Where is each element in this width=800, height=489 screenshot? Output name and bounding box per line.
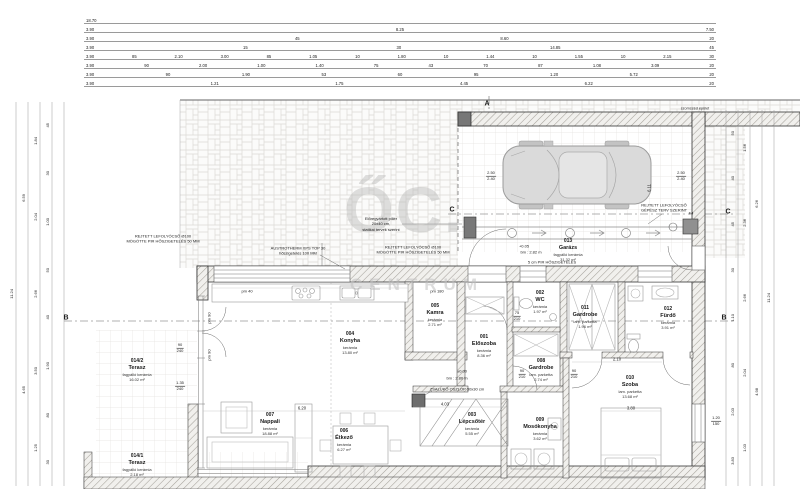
- garage-level-marker: +0.05: [519, 243, 529, 248]
- dimension-column: 6.264.98: [751, 110, 762, 486]
- dim-value: 4.65: [22, 386, 26, 394]
- dim-value: 2.04: [34, 213, 38, 221]
- inline-dim-bedroom: 2.10: [613, 357, 621, 362]
- section-marker-b-right: B: [721, 315, 726, 322]
- room-label-konyha: 004Konyha kerámia13.80 m²: [340, 331, 360, 355]
- dimension-column: 6.594.65: [18, 102, 29, 486]
- garage-clearance: bm : 2.82 m: [520, 249, 541, 254]
- hall-clearance: bm : 2.80 m: [446, 375, 467, 380]
- dim-value: 6.22: [585, 82, 593, 86]
- section-marker-c-left: C: [449, 207, 454, 214]
- precast-pillar-note: Előregyártott pillér 20x40 cm, statikai …: [362, 216, 399, 232]
- hidden-drain-note-center: REJTETT LEFOLYÓCSŐ Ø100 MÖGÖTTE PIR HŐSZ…: [376, 245, 449, 256]
- dim-value: 2.03: [731, 408, 735, 416]
- dim-value: 1.10: [731, 314, 735, 322]
- opening-size-bedroom-window: 1.20150: [711, 416, 721, 426]
- opening-size-garage-right: 2.502.40: [676, 171, 686, 181]
- dim-value: 40: [731, 176, 735, 180]
- opening-size-west-lower: 1.35240: [175, 381, 185, 391]
- opening-size-garage-left: 2.502.40: [486, 171, 496, 181]
- room-label-nappali: 007Nappali kerámia18.88 m²: [260, 412, 280, 436]
- dim-value: 1.90: [46, 362, 50, 370]
- dim-value: 1.00: [46, 218, 50, 226]
- parapet-note-pm90-upper: pm 90: [206, 312, 211, 323]
- dimension-column: 11.24: [6, 102, 17, 486]
- section-marker-a: A: [484, 101, 489, 108]
- hidden-drain-note-left: REJTETT LEFOLYÓCSŐ Ø100 MÖGÖTTE PIR HŐSZ…: [126, 234, 199, 245]
- opening-size-bedroom-door: 90210: [571, 369, 578, 379]
- inline-dim-stair: 4.03: [441, 402, 449, 407]
- dim-value: 1.84: [34, 137, 38, 145]
- room-label-kamra: 005Kamra kerámia2.71 m²: [426, 303, 443, 327]
- dim-value: 1.03: [743, 444, 747, 452]
- xps-insulation-note: AUSTROTHERM XPS TOP 30 hőszigetelés 100 …: [271, 246, 326, 257]
- parapet-note-pm180: pm 180: [430, 288, 443, 293]
- dim-value: 50: [46, 268, 50, 272]
- dim-value: 80: [731, 363, 735, 367]
- dim-value: 3.50: [34, 367, 38, 375]
- room-label-wc: 002WC kerámia1.97 m²: [533, 290, 547, 314]
- room-label-furdo: 012Fürdő kerámia3.91 m²: [660, 306, 676, 330]
- dim-value: 11.24: [767, 293, 771, 303]
- neighbor-building-note: szomszéd épület: [681, 106, 710, 111]
- dim-value: 45: [731, 222, 735, 226]
- dim-value: 2.04: [743, 369, 747, 377]
- dim-value: 1.75: [335, 82, 343, 86]
- opening-size-gardrobe-door: 90210: [519, 369, 526, 379]
- dim-value: 4.98: [755, 388, 759, 396]
- dim-value: 2.66: [34, 290, 38, 298]
- mech-drain-note: REJTETT LEFOLYÓCSŐ GÉPÉSZ TERV SZERINT: [641, 203, 687, 214]
- dim-value: 30: [731, 268, 735, 272]
- room-label-lepcsoter: 003Lépcsőtér kerámia5.55 m²: [459, 412, 485, 436]
- pir-insulation-note: 5 cm PIR HŐSZIGETELÉS: [528, 259, 576, 264]
- dim-value: 3.90: [86, 82, 94, 86]
- dim-value: 4.45: [460, 82, 468, 86]
- parapet-note-pm40: pm 40: [241, 288, 252, 293]
- zsaluko-column-note: ZSALUKŐ OSZLOP 30x30 cm: [430, 386, 484, 391]
- room-label-terasz-1: 014/1Terasz fagyálló kerámia2.18 m²: [122, 453, 151, 477]
- precast-pillar-block: [464, 217, 476, 238]
- section-marker-c-right: C: [725, 209, 730, 216]
- dim-value: 3.83: [731, 457, 735, 465]
- dim-value: 20: [709, 82, 714, 86]
- dimension-row: 3.901.211.754.456.2220: [84, 77, 716, 87]
- dim-value: 40: [46, 315, 50, 319]
- parapet-note-pm90-lower: pm 90: [206, 349, 211, 360]
- dim-value: 1.25: [34, 444, 38, 452]
- car: [503, 141, 651, 209]
- room-label-terasz-2: 014/2Terasz fagyálló kerámia16.02 m²: [122, 358, 151, 382]
- room-label-etkezo: 006Étkező kerámia6.27 m²: [335, 428, 353, 452]
- grate-label: F4: [689, 210, 694, 215]
- room-label-eloszoba: 001Előszoba kerámia8.36 m²: [472, 334, 496, 358]
- opening-size-west-upper: 90240: [177, 343, 184, 353]
- dimension-column: 1.562.362.662.041.03: [739, 110, 750, 486]
- room-label-szoba: 010Szoba lam. parketta13.68 m²: [618, 375, 641, 399]
- inline-dim-garage-depth: 6.11: [647, 184, 652, 192]
- watermark-word: CENTRUM: [350, 276, 484, 293]
- dim-value: 45: [46, 123, 50, 127]
- dim-value: 1.56: [743, 144, 747, 152]
- room-label-gardrobe-011: 011Gardrobe lam. parketta1.96 m²: [573, 305, 598, 329]
- dim-value: 1.21: [211, 82, 219, 86]
- dim-value: 80: [46, 413, 50, 417]
- opening-size-wc-door: 75210: [514, 311, 521, 321]
- section-marker-b-left: B: [63, 315, 68, 322]
- room-label-gardrobe-008: 008Gardrobe lam. parketta2.74 m²: [529, 358, 554, 382]
- dim-value: 6.26: [755, 200, 759, 208]
- dim-value: 50: [731, 131, 735, 135]
- dimension-column: 11.24: [763, 110, 774, 486]
- inline-dim-bed: 3.80: [627, 406, 635, 411]
- dim-value: 30: [46, 460, 50, 464]
- dimension-column: 45301.0050401.908030: [42, 102, 53, 486]
- dim-value: 2.66: [743, 294, 747, 302]
- floor-plan-canvas: ŐC. CENTRUM 18.70 3.908.257.50 3.90458.6…: [0, 0, 800, 489]
- inline-dim-living: 6.20: [298, 406, 306, 411]
- room-label-mosokonyha: 009Mosókonyha kerámia3.62 m²: [523, 417, 557, 441]
- dim-value: 6.59: [22, 194, 26, 202]
- dim-value: 30: [46, 171, 50, 175]
- hall-level-marker: ±0.00: [457, 368, 467, 373]
- dimension-column: 504045301.10802.033.83: [727, 110, 738, 486]
- dim-value: 11.24: [10, 289, 14, 299]
- dim-value: 2.36: [743, 219, 747, 227]
- watermark-monogram: ŐC.: [344, 178, 464, 242]
- dimension-column: 1.842.042.663.501.25: [30, 102, 41, 486]
